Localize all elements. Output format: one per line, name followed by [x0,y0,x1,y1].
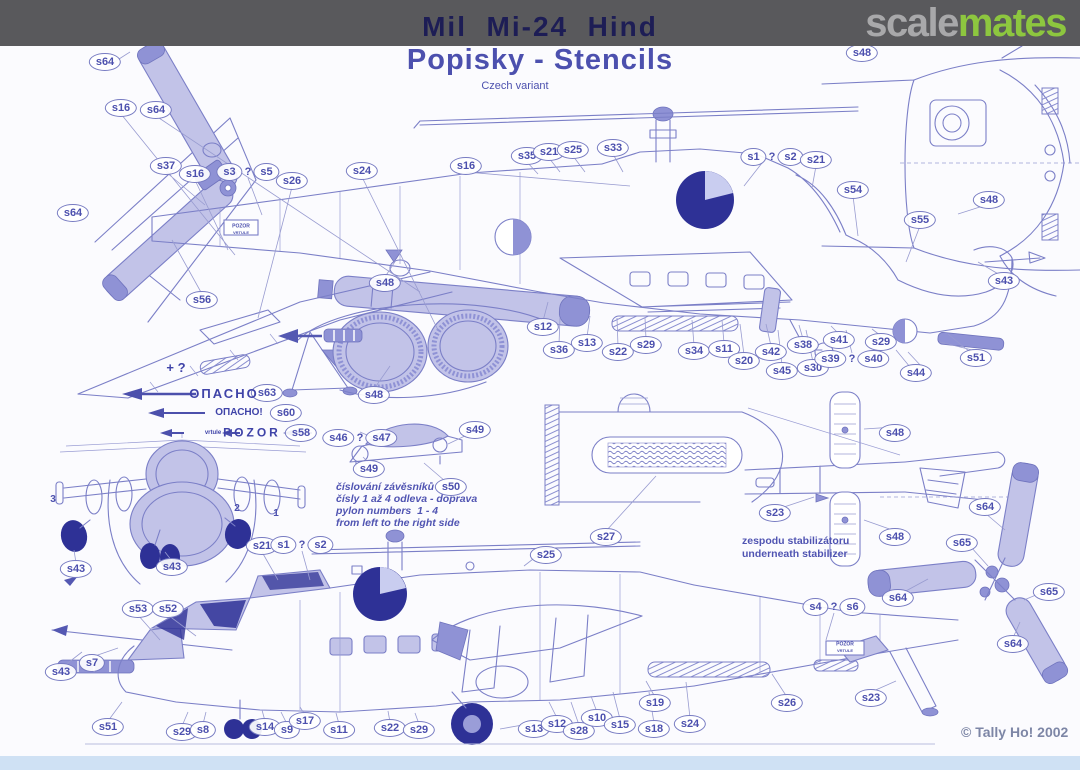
pozor-box-text: POZOR [232,224,250,229]
callout-bubble: s56 [186,291,218,309]
stencil-callout: s8 [190,721,216,739]
stencil-callout: s60 [270,404,302,422]
callout-bubble: s43 [45,663,77,681]
callout-bubble: s2 [307,536,333,554]
callout-layer: s64s16s64s37s16s3?s5s64s26s24s16s48s35s2… [0,0,1080,770]
callout-bubble: s34 [678,342,710,360]
scalemates-watermark-bar: Mil Mi-24 Hind scalemates [0,0,1080,46]
callout-bubble: s1 [740,148,766,166]
stencil-callout: s58 [285,424,317,442]
callout-bubble: s4 [802,598,828,616]
stencil-callout: s64 [997,635,1029,653]
stencil-callout: s64 [882,589,914,607]
callout-bubble: s1 [270,536,296,554]
callout-bubble: s8 [190,721,216,739]
callout-bubble: s13 [571,334,603,352]
callout-bubble: s53 [122,600,154,618]
callout-bubble: s16 [450,157,482,175]
callout-bubble: s33 [597,139,629,157]
callout-bubble: s47 [365,429,397,447]
callout-bubble: s54 [837,181,869,199]
callout-bubble: s29 [403,721,435,739]
question-mark: ? [357,432,364,444]
stencil-callout: s43 [60,560,92,578]
callout-bubble: s64 [969,498,1001,516]
callout-bubble: s64 [57,204,89,222]
callout-bubble: s64 [882,589,914,607]
stencil-callout: s51 [92,718,124,736]
callout-bubble: s65 [946,534,978,552]
stencil-callout: s26 [276,172,308,190]
stencil-pozor: POZOR [223,427,281,440]
stencil-callout: s64 [140,101,172,119]
stencil-callout: s54 [837,181,869,199]
callout-bubble: s43 [156,558,188,576]
stencil-callout: s44 [900,364,932,382]
stencil-callout: s4?s6 [802,598,865,616]
stencil-callout: s64 [969,498,1001,516]
stencil-callout: s48 [358,386,390,404]
sheet-subtitle: Popisky - Stencils [0,44,1080,77]
callout-bubble: s24 [674,715,706,733]
plus-question-mark: + ? [166,361,185,375]
callout-bubble: s3 [216,163,242,181]
stencil-callout: s25 [530,546,562,564]
stencil-callout: s39?s40 [814,350,889,368]
stencil-callout: s29 [865,333,897,351]
callout-bubble: s22 [374,719,406,737]
stencil-callout: s43 [988,272,1020,290]
logo-mates: mates [958,1,1066,45]
callout-bubble: s16 [105,99,137,117]
pylon-note-line-4: from left to the right side [336,518,460,529]
pozor-box-text: VRTULE [837,649,853,653]
stencil-callout: s48 [879,424,911,442]
callout-bubble: s40 [857,350,889,368]
stencil-callout: s64 [57,204,89,222]
stencil-callout: s1?s2 [270,536,333,554]
callout-bubble: s41 [823,331,855,349]
stencil-sheet-page: s64s16s64s37s16s3?s5s64s26s24s16s48s35s2… [0,0,1080,770]
stencil-callout: s42 [755,343,787,361]
stencil-callout: s15 [604,716,636,734]
pylon-note-line-1: číslování závěsníků [336,482,434,493]
stencil-callout: s34 [678,342,710,360]
pozor-box-text: VRTULE [233,231,249,235]
callout-bubble: s46 [322,429,354,447]
stencil-callout: s25 [557,141,589,159]
stencil-callout: s26 [771,694,803,712]
callout-bubble: s17 [289,712,321,730]
callout-bubble: s51 [960,349,992,367]
stencil-callout: s65 [1033,583,1065,601]
callout-bubble: s16 [179,165,211,183]
stencil-callout: s16 [105,99,137,117]
callout-bubble: s51 [92,718,124,736]
callout-bubble: s15 [604,716,636,734]
callout-bubble: s25 [557,141,589,159]
stencil-callout: s11 [323,721,355,739]
stencil-callout: s23 [759,504,791,522]
stencil-callout: s65 [946,534,978,552]
stencil-callout: s48 [879,528,911,546]
callout-bubble: s55 [904,211,936,229]
callout-bubble: s64 [997,635,1029,653]
stencil-callout: s24 [346,162,378,180]
callout-bubble: s45 [766,362,798,380]
stencil-callout: s22 [374,719,406,737]
stencil-callout: s45 [766,362,798,380]
callout-bubble: s26 [771,694,803,712]
callout-bubble: s37 [150,157,182,175]
callout-bubble: s11 [323,721,355,739]
callout-bubble: s42 [755,343,787,361]
stencil-callout: s49 [459,421,491,439]
stencil-callout: s19 [639,694,671,712]
callout-bubble: s23 [855,689,887,707]
callout-bubble: s49 [353,460,385,478]
stencil-opasno: ОПАСНО [189,387,258,401]
callout-bubble: s58 [285,424,317,442]
stencil-callout: s52 [152,600,184,618]
stencil-callout: s13 [571,334,603,352]
scalemates-logo: scalemates [865,0,1066,46]
callout-bubble: s48 [369,274,401,292]
callout-bubble: s12 [527,318,559,336]
stencil-callout: s55 [904,211,936,229]
callout-bubble: s43 [988,272,1020,290]
callout-bubble: s48 [973,191,1005,209]
question-mark: ? [769,151,776,163]
pylon-number-1: 1 [273,509,279,520]
stencil-callout: s37 [150,157,182,175]
callout-bubble: s43 [60,560,92,578]
callout-bubble: s26 [276,172,308,190]
callout-bubble: s48 [879,424,911,442]
stencil-vrtule-small: vrtule [205,430,221,436]
question-mark: ? [299,539,306,551]
callout-bubble: s44 [900,364,932,382]
stencil-callout: s24 [674,715,706,733]
stencil-callout: s18 [638,720,670,738]
stabilizer-note-line-1: zespodu stabilizátoru [742,536,849,547]
stencil-callout: s12 [527,318,559,336]
callout-bubble: s49 [459,421,491,439]
stencil-opasno-exclaim: ОПАСНО! [215,408,263,419]
stencil-callout: s56 [186,291,218,309]
callout-bubble: s7 [79,654,105,672]
callout-bubble: s39 [814,350,846,368]
callout-bubble: s24 [346,162,378,180]
stencil-callout: s27 [590,528,622,546]
stencil-callout: s48 [973,191,1005,209]
logo-scale: scale [865,1,958,45]
stencil-callout: s51 [960,349,992,367]
stencil-callout: s48 [369,274,401,292]
pozor-box-text: POZOR [836,642,854,647]
callout-bubble: s48 [358,386,390,404]
callout-bubble: s64 [140,101,172,119]
callout-bubble: s29 [865,333,897,351]
stencil-callout: s29 [403,721,435,739]
callout-bubble: s19 [639,694,671,712]
pylon-note-line-3: pylon numbers 1 - 4 [336,506,438,517]
pylon-note-line-2: čísly 1 až 4 odleva - doprava [336,494,477,505]
question-mark: ? [831,601,838,613]
callout-bubble: s29 [630,336,662,354]
stencil-callout: s33 [597,139,629,157]
stencil-callout: s46?s47 [322,429,397,447]
callout-bubble: s52 [152,600,184,618]
question-mark: ? [849,353,856,365]
callout-bubble: s23 [759,504,791,522]
callout-bubble: s6 [839,598,865,616]
stencil-callout: s49 [353,460,385,478]
callout-bubble: s21 [800,151,832,169]
stencil-callout: s16 [179,165,211,183]
callout-bubble: s65 [1033,583,1065,601]
callout-bubble: s18 [638,720,670,738]
callout-bubble: s27 [590,528,622,546]
stencil-callout: s43 [45,663,77,681]
callout-bubble: s60 [270,404,302,422]
callout-bubble: s25 [530,546,562,564]
stencil-callout: s53 [122,600,154,618]
pylon-number-3: 3 [50,495,56,506]
stencil-callout: s29 [630,336,662,354]
stencil-callout: s17 [289,712,321,730]
stencil-callout: s7 [79,654,105,672]
sheet-variant: Czech variant [0,80,1030,92]
callout-bubble: s48 [879,528,911,546]
stencil-callout: s21 [800,151,832,169]
stabilizer-note-line-2: underneath stabilizer [742,549,848,560]
pylon-number-2: 2 [234,504,240,515]
stencil-callout: s43 [156,558,188,576]
stencil-callout: s16 [450,157,482,175]
stencil-callout: s23 [855,689,887,707]
stencil-callout: s41 [823,331,855,349]
stencil-callout: s1?s2 [740,148,803,166]
question-mark: ? [245,166,252,178]
stencil-callout: s3?s5 [216,163,279,181]
